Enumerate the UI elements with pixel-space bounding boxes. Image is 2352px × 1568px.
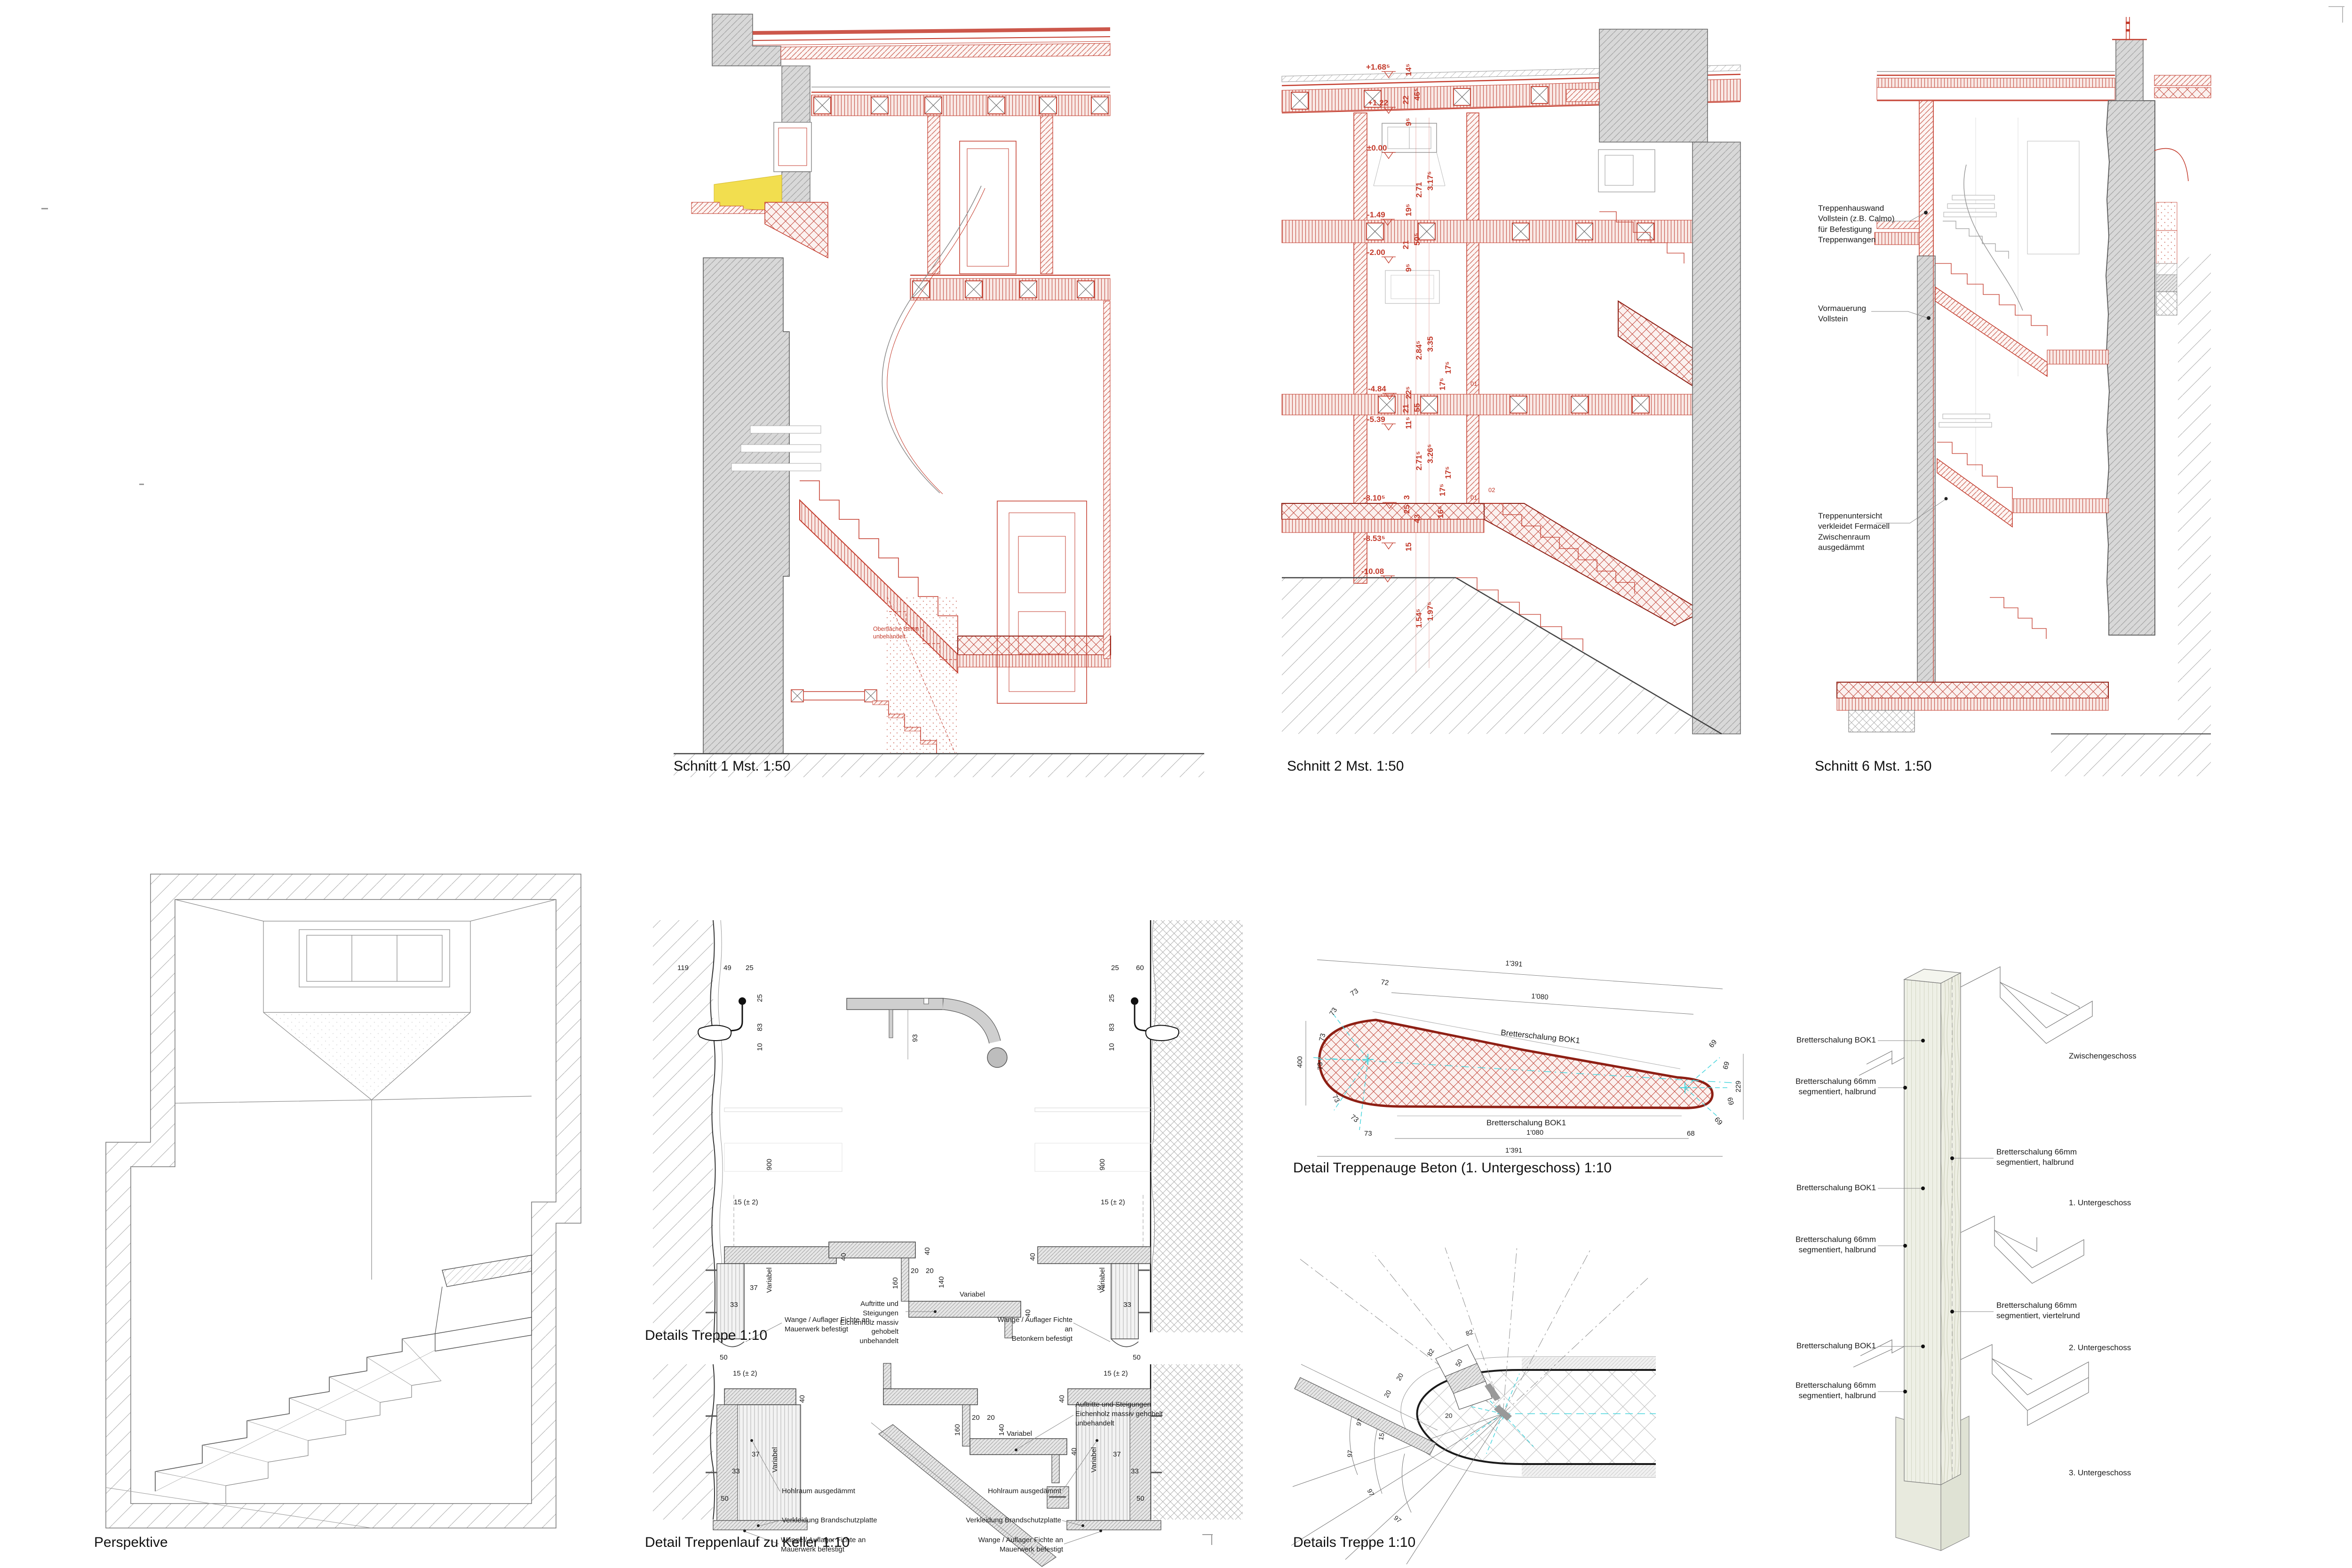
- dim-25b: 25: [756, 994, 764, 1002]
- dim-400: 400: [1296, 1056, 1304, 1068]
- annotation-wange-left: Wange / Auflager Fichte an Mauerwerk bef…: [781, 1536, 880, 1554]
- margin-tick-2: [139, 484, 144, 485]
- dim-50b: 50: [1133, 1353, 1141, 1361]
- level-m1-49: -1.49: [1367, 210, 1385, 219]
- dim-p20c: 20: [1445, 1412, 1453, 1419]
- level-m10-08: -10.08: [1361, 567, 1384, 576]
- dim-p97b: 97: [1346, 1449, 1354, 1457]
- dim-19-5: 19⁵: [1404, 204, 1413, 216]
- level-m2-00: -2.00: [1367, 248, 1385, 257]
- dim-69a: 69: [1708, 1038, 1719, 1050]
- dim-50a: 50: [720, 1353, 728, 1361]
- dim-p15: 15: [1377, 1432, 1385, 1441]
- level-1-22: +1.22: [1368, 98, 1388, 107]
- perspective-drawing: [106, 874, 581, 1528]
- step-mark-01a: 01: [1470, 380, 1477, 387]
- dim-229: 229: [1734, 1081, 1742, 1092]
- title-schnitt-6: Schnitt 6 Mst. 1:50: [1815, 758, 1931, 774]
- dim-1-97: 1.97⁵: [1426, 602, 1435, 621]
- treppenauge-drawing: 1'391 1'080 72 73 73 73 73 73 73 73 400 …: [1296, 959, 1743, 1156]
- level-m8-53: -8.53⁵: [1363, 534, 1385, 543]
- dim-22-5: 22⁵: [1404, 386, 1413, 399]
- axo-drawing: [1853, 967, 2092, 1551]
- level-m5-39: -5.39: [1367, 415, 1385, 424]
- dim-17-5c: 17⁵: [1438, 484, 1447, 496]
- dim-21a: 21: [1401, 240, 1410, 249]
- dim-93: 93: [911, 1034, 919, 1042]
- dim-37b: 37: [1097, 1284, 1105, 1292]
- title-details-treppe: Details Treppe 1:10: [645, 1328, 767, 1344]
- dim-p97d: 97: [1392, 1514, 1403, 1524]
- step-mark-01b: 01: [1470, 494, 1477, 501]
- dim-10a: 10: [756, 1043, 764, 1051]
- margin-tick-1: [41, 208, 48, 209]
- dim-22: 22: [1401, 96, 1410, 104]
- dim-3-17: 3.17⁵: [1426, 171, 1435, 191]
- dim-k37b: 37: [1113, 1450, 1121, 1458]
- dim-17-5a: 17⁵: [1438, 378, 1447, 390]
- dim-kvar-m: Variabel: [1007, 1430, 1032, 1438]
- dim-900a: 900: [765, 1159, 773, 1170]
- dim-37a: 37: [750, 1284, 758, 1292]
- details-treppe-plan-drawing: 82 82 50 20 20 20 97 97 97 97 15: [1291, 1246, 1656, 1564]
- annotation-treppenhauswand: Treppenhauswand Vollstein (z.B. Calmo) f…: [1818, 203, 1917, 246]
- annotation-wange-right: Wange / Auflager Fichte an Mauerwerk bef…: [964, 1536, 1063, 1554]
- axo-label-halbrund-right: Bretterschalung 66mm segmentiert, halbru…: [1996, 1147, 2077, 1168]
- dim-17-5d: 17⁵: [1444, 466, 1453, 479]
- dim-2-71: 2.71: [1414, 182, 1423, 198]
- dim-k15b: 15 (± 2): [1104, 1369, 1128, 1377]
- dim-73f: 73: [1349, 1113, 1360, 1124]
- axo-label-66mm-c: Bretterschalung 66mm segmentiert, halbru…: [1783, 1380, 1876, 1401]
- dim-46-5: 46⁵: [1413, 88, 1422, 101]
- annotation-verkleidung-right: Verkleidung Brandschutzplatte: [954, 1516, 1061, 1525]
- dim-900b: 900: [1098, 1159, 1106, 1170]
- dim-p97c: 97: [1366, 1488, 1376, 1497]
- dim-50-5: 50⁵: [1413, 233, 1422, 246]
- dim-60: 60: [1136, 964, 1144, 972]
- dim-2-84: 2.84⁵: [1414, 341, 1423, 360]
- dim-1391-bottom: 1'391: [1505, 1146, 1522, 1154]
- dim-83b: 83: [1108, 1023, 1116, 1031]
- dim-k40a: 40: [798, 1395, 806, 1403]
- dim-1080-bottom: 1'080: [1526, 1129, 1543, 1137]
- step-mark-02: 02: [1488, 486, 1495, 493]
- dim-43: 43: [1413, 514, 1422, 523]
- dim-kvar-b: Variabel: [1090, 1447, 1098, 1472]
- dim-20a: 20: [911, 1267, 919, 1275]
- schnitt-6-drawing: [1837, 17, 2211, 776]
- level-m4-84: -4.84: [1368, 384, 1386, 393]
- title-perspektive: Perspektive: [94, 1535, 168, 1551]
- axo-label-66mm-a: Bretterschalung 66mm segmentiert, halbru…: [1783, 1076, 1876, 1098]
- dim-10b: 10: [1108, 1043, 1116, 1051]
- dim-9-5a: 9⁵: [1404, 118, 1413, 126]
- annotation-verkleidung-left: Verkleidung Brandschutzplatte: [782, 1516, 895, 1525]
- dim-15: 15: [1404, 542, 1413, 551]
- axo-label-bok1-b: Bretterschalung BOK1: [1787, 1183, 1876, 1193]
- dim-83a: 83: [756, 1023, 764, 1031]
- level-0-00: ±0.00: [1367, 143, 1387, 152]
- level-1-68: +1.68⁵: [1366, 63, 1390, 72]
- sheet-corner-mark: [2328, 7, 2344, 23]
- dim-variabel-a: Variabel: [765, 1267, 773, 1293]
- dim-25a: 25: [746, 964, 754, 972]
- dim-33b: 33: [1123, 1301, 1131, 1309]
- axo-label-66mm-b: Bretterschalung 66mm segmentiert, halbru…: [1783, 1234, 1876, 1256]
- dim-73c: 73: [1318, 1033, 1327, 1042]
- axo-label-viertelrund-right: Bretterschalung 66mm segmentiert, vierte…: [1996, 1300, 2080, 1321]
- schnitt-2-drawing: +1.68⁵ +1.22 ±0.00 -1.49 -2.00 -4.84 -5.…: [1282, 29, 1740, 734]
- annotation-hohlraum-right: Hohlraum ausgedämmt: [972, 1487, 1061, 1496]
- dim-40b: 40: [923, 1247, 931, 1255]
- dim-73g: 73: [1364, 1130, 1372, 1138]
- annotation-wange-beton: Wange / Auflager Fichte an Betonkern bef…: [988, 1315, 1073, 1343]
- annotation-auftritte-keller: Auftritte und Steigungen Eichenholz mass…: [1075, 1400, 1165, 1428]
- dim-p20b: 20: [1383, 1389, 1393, 1399]
- dim-k33b: 33: [1131, 1467, 1139, 1475]
- dim-160a: 160: [891, 1277, 899, 1289]
- dim-variabel-m: Variabel: [960, 1290, 985, 1298]
- dim-119: 119: [677, 964, 689, 972]
- dim-1-54: 1.54⁵: [1414, 609, 1423, 628]
- dim-p20a: 20: [1395, 1372, 1405, 1382]
- dim-3-35: 3.35: [1426, 336, 1435, 352]
- dim-2-71-5: 2.71⁵: [1414, 451, 1423, 470]
- dim-1080-top: 1'080: [1531, 992, 1549, 1001]
- dim-73d: 73: [1316, 1062, 1325, 1070]
- dim-69d: 69: [1713, 1115, 1724, 1127]
- dim-40a: 40: [840, 1253, 848, 1261]
- axo-label-2-untergeschoss: 2. Untergeschoss: [2069, 1343, 2131, 1353]
- dim-k50a: 50: [721, 1495, 729, 1503]
- note-oberflaeche-beton: Oberfläche Beton unbehandelt: [873, 626, 919, 640]
- dim-73a: 73: [1349, 987, 1360, 998]
- dim-k50b: 50: [1136, 1495, 1144, 1503]
- axo-label-bok1-c: Bretterschalung BOK1: [1787, 1341, 1876, 1351]
- dim-17-5b: 17⁵: [1444, 361, 1453, 374]
- dim-k15a: 15 (± 2): [733, 1369, 757, 1377]
- title-schnitt-1: Schnitt 1 Mst. 1:50: [674, 758, 790, 774]
- sheet-linework: +1.68⁵ +1.22 ±0.00 -1.49 -2.00 -4.84 -5.…: [0, 0, 2352, 1568]
- dim-69b: 69: [1721, 1061, 1731, 1071]
- axo-label-1-untergeschoss: 1. Untergeschoss: [2069, 1198, 2131, 1208]
- dim-kvar-a: Variabel: [771, 1447, 779, 1472]
- dim-55: 55: [1413, 403, 1422, 412]
- axo-label-zwischengeschoss: Zwischengeschoss: [2069, 1051, 2137, 1061]
- dim-21b: 21: [1401, 404, 1410, 413]
- dim-33a: 33: [730, 1301, 738, 1309]
- dim-15pm-a: 15 (± 2): [734, 1198, 758, 1206]
- dim-p82a: 82: [1465, 1328, 1474, 1337]
- label-bretterschalung-bottom: Bretterschalung BOK1: [1486, 1118, 1566, 1127]
- title-details-treppe-plan: Details Treppe 1:10: [1293, 1535, 1415, 1551]
- dim-k20b: 20: [987, 1414, 995, 1422]
- dim-40d: 40: [1029, 1253, 1037, 1261]
- dim-25: 25: [1402, 505, 1411, 514]
- dim-3: 3: [1402, 495, 1411, 500]
- title-schnitt-2: Schnitt 2 Mst. 1:50: [1287, 758, 1404, 774]
- dim-k20a: 20: [972, 1414, 980, 1422]
- dim-16-5: 16⁵: [1436, 506, 1445, 518]
- dim-k40m: 40: [1070, 1448, 1078, 1456]
- schnitt-1-drawing: [674, 14, 1204, 777]
- dim-k140: 140: [998, 1424, 1006, 1436]
- dim-k40b: 40: [1058, 1395, 1066, 1403]
- dim-15pm-b: 15 (± 2): [1101, 1198, 1125, 1206]
- axo-label-bok1-a: Bretterschalung BOK1: [1787, 1035, 1876, 1045]
- details-treppe-drawing: 119 49 25 25 83 10 900 Variabel 15 (± 2)…: [653, 920, 1243, 1361]
- dim-72: 72: [1380, 978, 1389, 987]
- dim-11-5: 11⁵: [1404, 417, 1413, 429]
- annotation-hohlraum-left: Hohlraum ausgedämmt: [782, 1487, 876, 1496]
- dim-14-5: 14⁵: [1404, 64, 1413, 76]
- dim-73b: 73: [1328, 1006, 1339, 1017]
- annotation-vormauerung: Vormauerung Vollstein: [1818, 303, 1917, 325]
- dim-3-26-5: 3.26⁵: [1426, 444, 1435, 463]
- title-treppenauge: Detail Treppenauge Beton (1. Untergescho…: [1293, 1160, 1612, 1176]
- dim-140a: 140: [938, 1276, 946, 1288]
- annotation-treppenuntersicht: Treppenuntersicht verkleidet Fermacell Z…: [1818, 511, 1917, 553]
- dim-k160: 160: [954, 1424, 961, 1436]
- dim-1391-top: 1'391: [1505, 959, 1523, 968]
- dim-68: 68: [1687, 1130, 1695, 1138]
- dim-25c: 25: [1111, 964, 1119, 972]
- dim-25d: 25: [1108, 994, 1116, 1002]
- axo-label-3-untergeschoss: 3. Untergeschoss: [2069, 1468, 2131, 1478]
- dim-20b: 20: [926, 1267, 934, 1275]
- dim-k33a: 33: [732, 1467, 740, 1475]
- level-m8-10: -8.10⁵: [1363, 493, 1385, 502]
- annotation-auftritte: Auftritte und Steigungen Eichenholz mass…: [823, 1299, 898, 1346]
- dim-49: 49: [723, 964, 731, 972]
- dim-k37a: 37: [752, 1450, 760, 1458]
- drawing-sheet: +1.68⁵ +1.22 ±0.00 -1.49 -2.00 -4.84 -5.…: [0, 0, 2352, 1568]
- dim-9-5b: 9⁵: [1404, 264, 1413, 272]
- dim-69c: 69: [1725, 1097, 1735, 1106]
